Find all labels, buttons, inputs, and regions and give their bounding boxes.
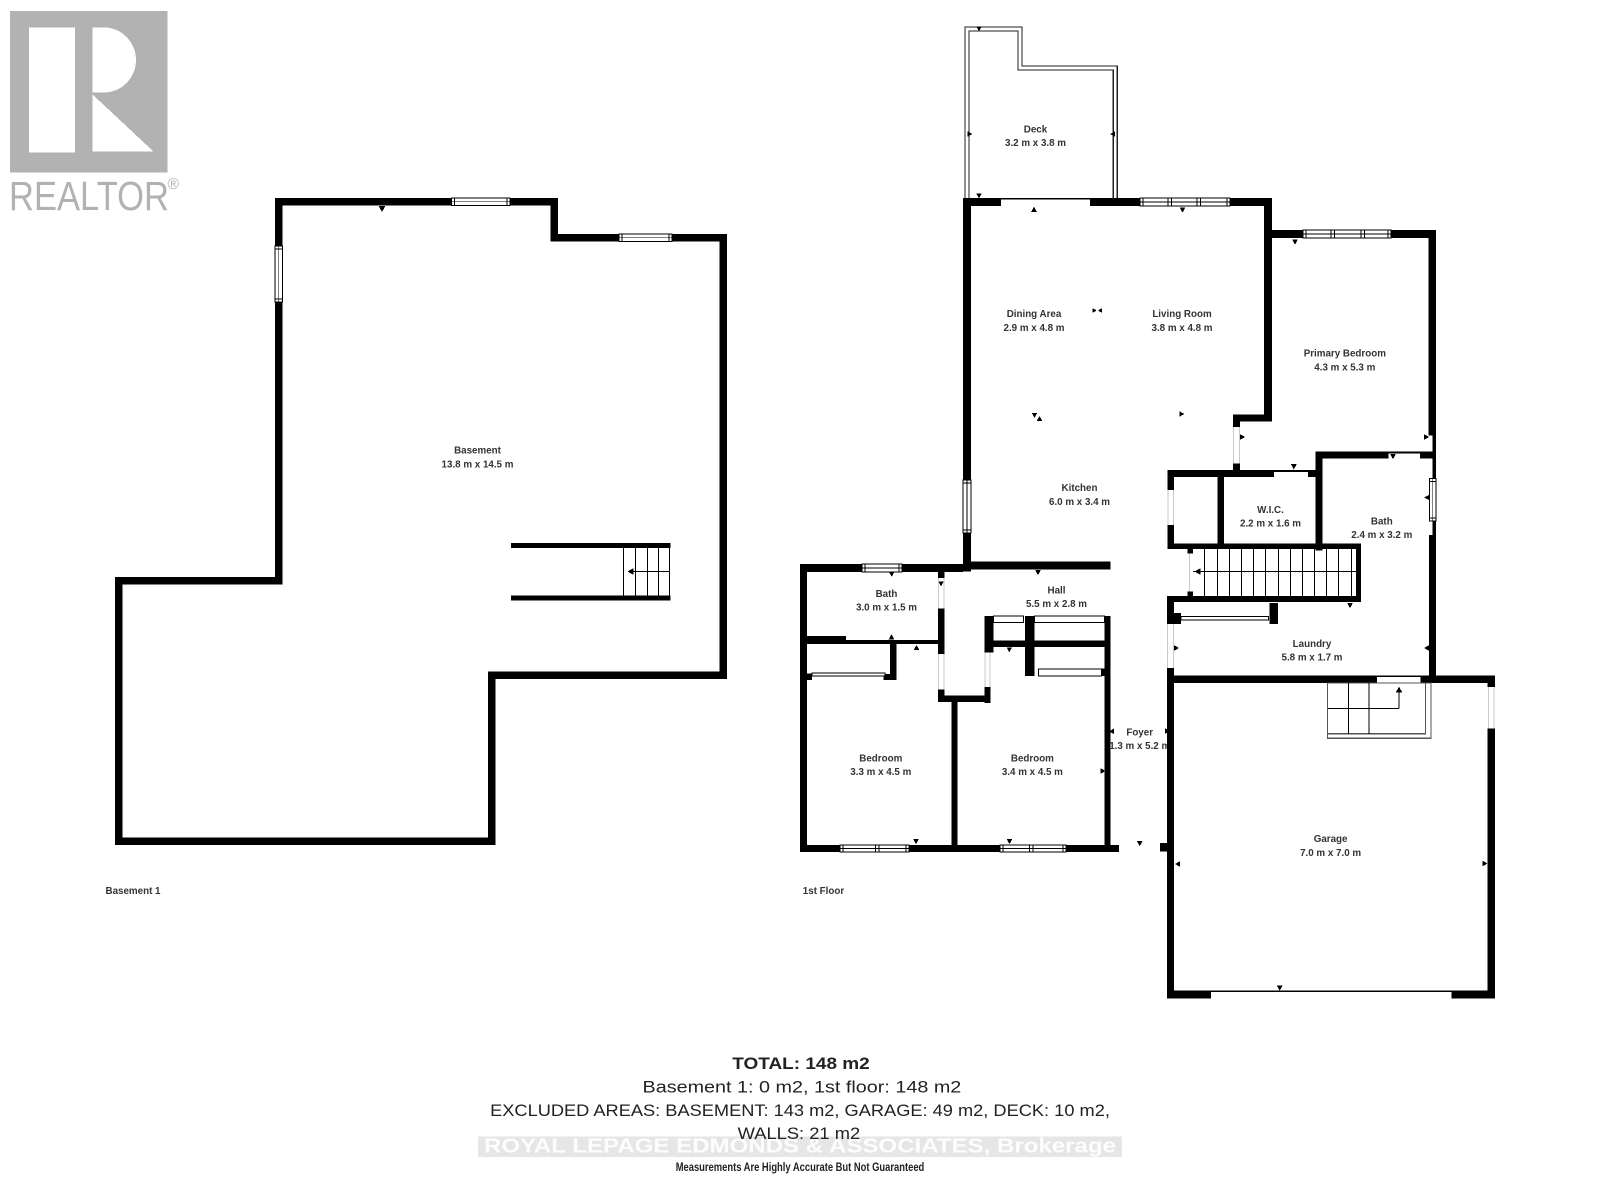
svg-text:3.0 m x 1.5 m: 3.0 m x 1.5 m bbox=[856, 603, 917, 614]
svg-text:Basement 1: Basement 1 bbox=[106, 886, 162, 897]
svg-text:5.8 m x 1.7 m: 5.8 m x 1.7 m bbox=[1282, 653, 1343, 664]
svg-text:3.8 m x 4.8 m: 3.8 m x 4.8 m bbox=[1152, 323, 1213, 334]
svg-text:REALTOR: REALTOR bbox=[9, 173, 169, 219]
svg-text:2.4 m x 3.2 m: 2.4 m x 3.2 m bbox=[1351, 530, 1412, 541]
svg-text:Kitchen: Kitchen bbox=[1062, 483, 1098, 494]
svg-text:®: ® bbox=[168, 176, 180, 193]
svg-text:7.0 m x 7.0 m: 7.0 m x 7.0 m bbox=[1300, 848, 1361, 859]
svg-text:2.2 m x 1.6 m: 2.2 m x 1.6 m bbox=[1240, 519, 1301, 530]
svg-text:TOTAL: 148 m2: TOTAL: 148 m2 bbox=[732, 1054, 870, 1073]
svg-text:Bedroom: Bedroom bbox=[859, 753, 902, 764]
svg-text:1st Floor: 1st Floor bbox=[803, 886, 845, 897]
svg-text:Foyer: Foyer bbox=[1126, 727, 1153, 738]
svg-text:Dining Area: Dining Area bbox=[1007, 309, 1062, 320]
svg-text:6.0 m x 3.4 m: 6.0 m x 3.4 m bbox=[1049, 497, 1110, 508]
svg-text:13.8 m x 14.5 m: 13.8 m x 14.5 m bbox=[442, 459, 514, 470]
svg-text:2.9 m x 4.8 m: 2.9 m x 4.8 m bbox=[1004, 323, 1065, 334]
svg-text:EXCLUDED AREAS: BASEMENT: 143: EXCLUDED AREAS: BASEMENT: 143 m2, GARAGE… bbox=[490, 1101, 1110, 1120]
svg-text:WALLS: 21 m2: WALLS: 21 m2 bbox=[738, 1124, 861, 1143]
svg-text:3.4 m x 4.5 m: 3.4 m x 4.5 m bbox=[1002, 767, 1063, 778]
svg-text:3.2 m x 3.8 m: 3.2 m x 3.8 m bbox=[1005, 138, 1066, 149]
svg-text:Primary Bedroom: Primary Bedroom bbox=[1304, 349, 1387, 360]
svg-text:Basement: Basement bbox=[454, 446, 502, 457]
svg-text:4.3 m x 5.3 m: 4.3 m x 5.3 m bbox=[1314, 362, 1375, 373]
svg-text:1.3 m x 5.2 m: 1.3 m x 5.2 m bbox=[1109, 741, 1170, 752]
svg-text:Laundry: Laundry bbox=[1293, 639, 1332, 650]
svg-text:Hall: Hall bbox=[1048, 585, 1066, 596]
svg-text:5.5 m x 2.8 m: 5.5 m x 2.8 m bbox=[1026, 599, 1087, 610]
svg-text:Bath: Bath bbox=[876, 589, 898, 600]
svg-text:Deck: Deck bbox=[1024, 124, 1048, 135]
svg-text:Bedroom: Bedroom bbox=[1011, 753, 1054, 764]
svg-text:W.I.C.: W.I.C. bbox=[1257, 505, 1284, 516]
svg-text:Measurements Are Highly Accura: Measurements Are Highly Accurate But Not… bbox=[676, 1160, 925, 1174]
svg-text:Garage: Garage bbox=[1314, 834, 1348, 845]
svg-text:3.3 m x 4.5 m: 3.3 m x 4.5 m bbox=[850, 767, 911, 778]
svg-text:Living Room: Living Room bbox=[1152, 309, 1212, 320]
svg-text:Bath: Bath bbox=[1371, 516, 1393, 527]
svg-text:Basement 1: 0 m2, 1st floor: 1: Basement 1: 0 m2, 1st floor: 148 m2 bbox=[643, 1078, 962, 1097]
